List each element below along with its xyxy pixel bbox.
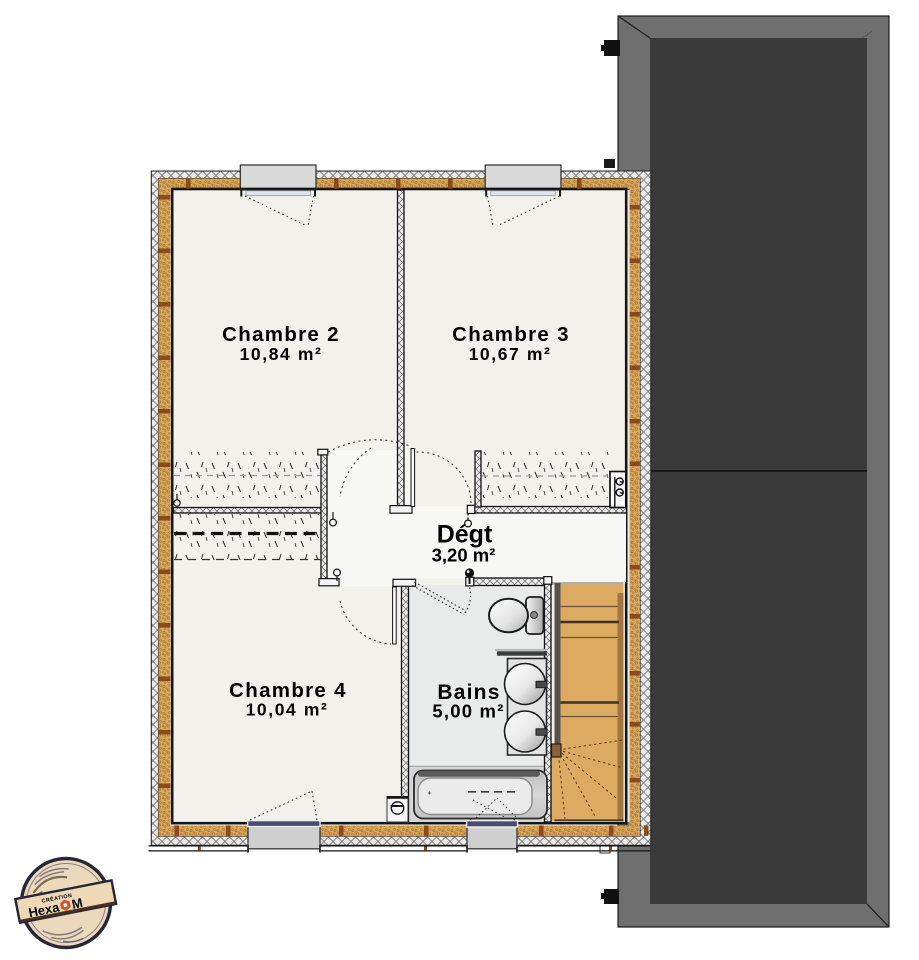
svg-text:10,84 m²: 10,84 m² <box>240 344 323 364</box>
svg-text:Chambre 2: Chambre 2 <box>222 323 340 346</box>
svg-text:Chambre 3: Chambre 3 <box>452 323 570 346</box>
svg-text:3,20 m²: 3,20 m² <box>432 545 496 566</box>
svg-text:10,67 m²: 10,67 m² <box>469 344 552 364</box>
svg-text:10,04 m²: 10,04 m² <box>246 700 329 720</box>
svg-text:5,00 m²: 5,00 m² <box>432 701 504 722</box>
